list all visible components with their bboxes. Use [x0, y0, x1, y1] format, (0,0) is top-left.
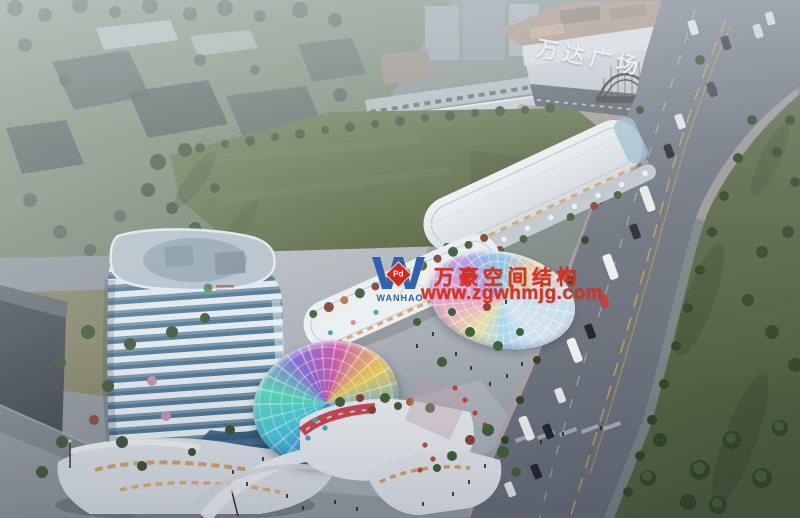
- streetside-trees-southwest: [36, 313, 235, 478]
- watermark-url-text: www.zgwhmjg.com: [421, 283, 603, 305]
- aerial-rendering: 万达广场 W Pd WANHAO 万豪空间结构 www.zgwhmjg.com: [0, 0, 800, 518]
